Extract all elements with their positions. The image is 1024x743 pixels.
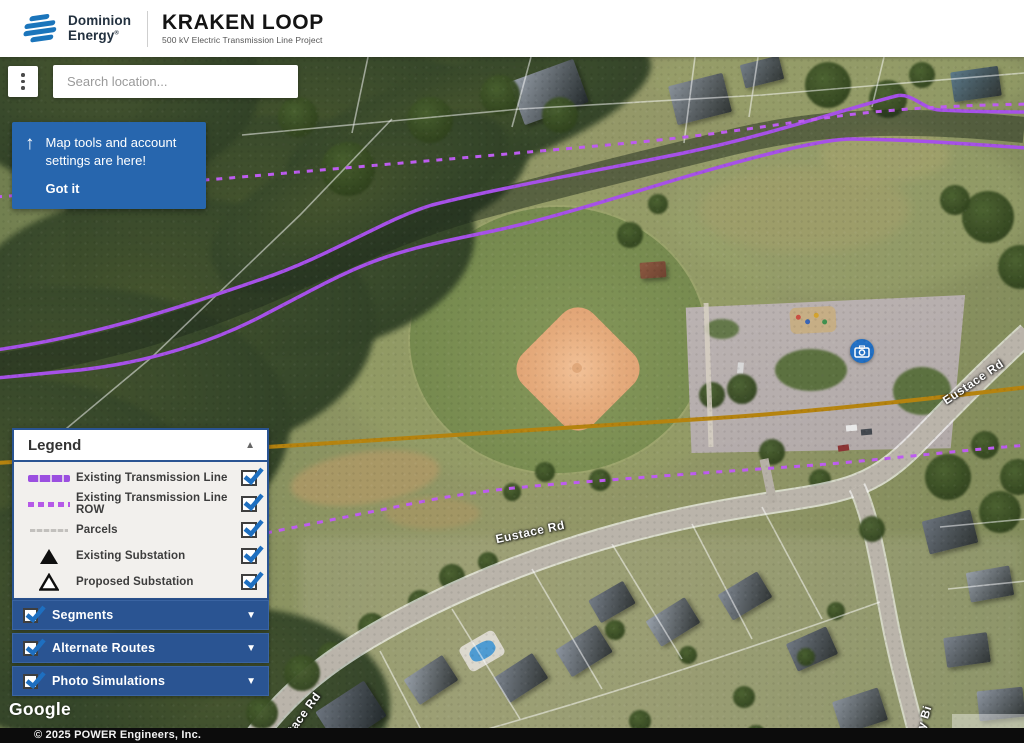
- chevron-down-icon[interactable]: ▼: [246, 610, 256, 621]
- legend-item-proposed-substation: Proposed Substation: [14, 569, 267, 595]
- legend-header[interactable]: Legend ▲: [14, 430, 267, 462]
- checkmark-icon: [243, 545, 264, 563]
- checkbox-proposed-substation[interactable]: [241, 574, 257, 590]
- legend-title: Legend: [28, 437, 81, 454]
- chevron-down-icon[interactable]: ▼: [246, 676, 256, 687]
- checkbox-parcels[interactable]: [241, 522, 257, 538]
- checkmark-icon: [243, 519, 264, 537]
- legend-items: Existing Transmission Line Existing Tran…: [14, 462, 267, 598]
- solid-purple-line-symbol: [28, 475, 70, 482]
- copyright-bar: © 2025 POWER Engineers, Inc.: [0, 728, 1024, 743]
- group-bar-photo-simulations[interactable]: Photo Simulations ▼: [12, 666, 269, 696]
- copyright-text: © 2025 POWER Engineers, Inc.: [0, 728, 1024, 743]
- app-window: Eustace Rd Eustace Rd Eustace Rd Gray Bi…: [0, 0, 1024, 743]
- checkmark-icon: [25, 638, 46, 656]
- checkmark-icon: [243, 571, 264, 589]
- map-attribution-strip: [952, 714, 1024, 728]
- tooltip-message: Map tools and account settings are here!: [46, 134, 194, 171]
- map-tools-menu-button[interactable]: [8, 66, 38, 97]
- got-it-button[interactable]: Got it: [46, 181, 80, 196]
- camera-icon: [854, 345, 870, 358]
- walkway: [706, 303, 711, 447]
- checkbox-existing-substation[interactable]: [241, 548, 257, 564]
- app-header: Dominion Energy® KRAKEN LOOP 500 kV Elec…: [0, 0, 1024, 57]
- location-search: [53, 65, 298, 98]
- checkbox-segments[interactable]: [23, 608, 38, 623]
- brand-name: Dominion Energy®: [68, 14, 131, 43]
- legend-item-existing-transmission-line: Existing Transmission Line: [14, 465, 267, 491]
- checkmark-icon: [25, 605, 46, 623]
- legend-panel: Legend ▲ Existing Transmission Line Exis…: [12, 428, 269, 600]
- google-watermark: Google: [9, 699, 71, 720]
- chevron-down-icon[interactable]: ▼: [246, 643, 256, 654]
- header-divider: [147, 11, 148, 47]
- checkmark-icon: [243, 493, 264, 511]
- outline-triangle-symbol: [39, 573, 59, 591]
- kebab-menu-icon: [21, 73, 25, 77]
- group-bar-segments[interactable]: Segments ▼: [12, 600, 269, 630]
- checkbox-alternate-routes[interactable]: [23, 641, 38, 656]
- filled-triangle-symbol: [39, 548, 59, 565]
- chevron-up-icon[interactable]: ▲: [245, 440, 255, 451]
- dashed-purple-line-symbol: [28, 502, 70, 507]
- checkmark-icon: [25, 671, 46, 689]
- legend-item-existing-transmission-line-row: Existing Transmission Line ROW: [14, 491, 267, 517]
- legend-item-parcels: Parcels: [14, 517, 267, 543]
- checkbox-transmission-line-row[interactable]: [241, 496, 257, 512]
- page-title: KRAKEN LOOP: [162, 12, 324, 33]
- onboarding-tooltip: ↑ Map tools and account settings are her…: [12, 122, 206, 209]
- search-input[interactable]: [53, 65, 298, 98]
- parcel-line-symbol: [30, 529, 68, 532]
- page-subtitle: 500 kV Electric Transmission Line Projec…: [162, 35, 324, 45]
- checkbox-photo-simulations[interactable]: [23, 674, 38, 689]
- checkmark-icon: [243, 467, 264, 485]
- legend-item-existing-substation: Existing Substation: [14, 543, 267, 569]
- checkbox-existing-transmission-line[interactable]: [241, 470, 257, 486]
- arrow-up-icon: ↑: [25, 134, 35, 198]
- dominion-energy-logo-icon: [20, 9, 62, 48]
- group-bar-alternate-routes[interactable]: Alternate Routes ▼: [12, 633, 269, 663]
- photo-simulation-camera-marker[interactable]: [850, 339, 874, 363]
